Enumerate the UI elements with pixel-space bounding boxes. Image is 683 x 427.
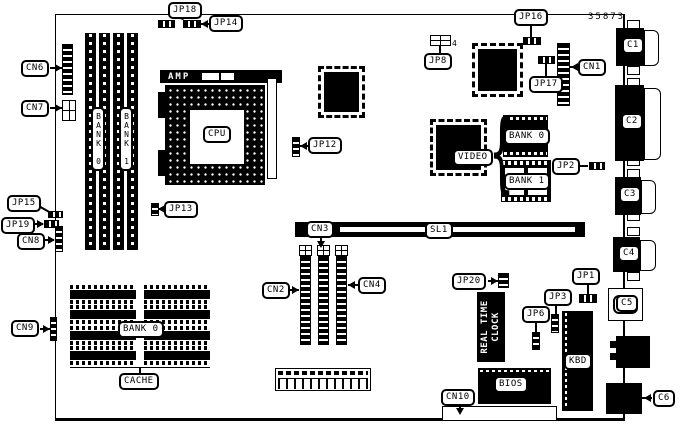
qfp-chip (318, 66, 365, 118)
rtc-chip: REAL TIME CLOCK (477, 292, 505, 362)
jp2-jumper (589, 162, 605, 170)
c6-arrow (644, 394, 651, 402)
c6-port (606, 383, 642, 414)
din-connector (616, 336, 650, 368)
edge-tab (627, 227, 640, 236)
cn4-arrow (348, 281, 355, 289)
jp15-jumper (48, 211, 63, 218)
sl1-slot-groove (340, 227, 575, 232)
jp17-pointer (545, 64, 547, 76)
jp16-label: JP16 (514, 9, 548, 26)
jp8-jumper (430, 35, 451, 46)
chipset-chip (472, 43, 523, 97)
cn1-label: CN1 (578, 59, 606, 76)
socket-tab (158, 92, 165, 118)
rtc-text: REAL TIME CLOCK (477, 292, 505, 362)
cn8-connector (55, 226, 63, 252)
video-chip (430, 119, 487, 176)
video-label: VIDEO (453, 149, 493, 166)
cn9-arrow (43, 325, 50, 333)
cpu-socket-brand-label: AMP (168, 72, 190, 82)
edge-tab (627, 272, 640, 281)
edge-tab (627, 66, 640, 75)
jp14-arrow (201, 20, 208, 28)
rtc-line2: CLOCK (491, 292, 502, 362)
sl1-label: SL1 (425, 222, 453, 239)
c1-dsub-shell (644, 30, 659, 66)
din-connector-tab (610, 341, 617, 348)
jp12-arrow (300, 142, 307, 150)
jp20-arrow (491, 277, 498, 285)
cache-bank0-label: BANK 0 (118, 321, 164, 338)
cache-label: CACHE (119, 373, 159, 390)
jp20-jumper (498, 273, 509, 288)
cn2-label: CN2 (262, 282, 290, 299)
jp8-label: JP8 (424, 53, 452, 70)
jp18-label: JP18 (168, 2, 202, 19)
bios-label: BIOS (494, 376, 528, 393)
cn8-arrow (48, 236, 55, 244)
cn1-arrow (571, 63, 578, 71)
jp15-label: JP15 (7, 195, 41, 212)
video-bank1-label: BANK 1 (504, 173, 550, 190)
cn3-label: CN3 (306, 221, 334, 238)
cn9-connector (50, 317, 57, 341)
cn7-connector (62, 100, 76, 121)
cn10-label: CN10 (441, 389, 475, 406)
jp16-jumper (523, 37, 541, 45)
c6-label: C6 (653, 390, 675, 407)
cn3-slot (318, 256, 329, 345)
simm-bank1-label: BANK 1 (119, 107, 133, 171)
jp8-pin-number: 4 (452, 39, 457, 48)
jp14-jumper (183, 20, 201, 28)
c2-dsub-shell (644, 88, 661, 160)
jp12-jumper (292, 137, 300, 157)
jp13-label: JP13 (164, 201, 198, 218)
kbd-label: KBD (564, 353, 592, 370)
jp2-label: JP2 (552, 158, 580, 175)
cn6-arrow (55, 64, 62, 72)
jp18-jumper (158, 20, 175, 28)
cache-chip (70, 285, 136, 304)
cn7-label: CN7 (21, 100, 49, 117)
cn4-slot-header (335, 245, 348, 256)
c2-label: C2 (621, 113, 643, 130)
cn3-arrow (317, 241, 325, 248)
cn6-label: CN6 (21, 60, 49, 77)
jp1-jumper (579, 294, 597, 303)
jp19-label: JP19 (1, 217, 35, 234)
jp3-label: JP3 (544, 289, 572, 306)
socket-tab (158, 150, 165, 176)
c5-label: C5 (616, 295, 638, 312)
cn2-arrow (292, 286, 299, 294)
part-number: 35873 (588, 12, 625, 22)
c1-label: C1 (622, 37, 644, 54)
c4-label: C4 (618, 245, 640, 262)
jp20-label: JP20 (452, 273, 486, 290)
din-connector-tab (610, 353, 617, 360)
pin-row (278, 371, 368, 375)
cn8-label: CN8 (17, 233, 45, 250)
motherboard-diagram: 35873 BANK 0 BANK 1 AMP CPU VIDEO { BANK… (0, 0, 683, 427)
c3-dsub-shell (641, 180, 656, 214)
jp17-label: JP17 (529, 76, 563, 93)
cache-chip (144, 346, 210, 365)
cpu-label: CPU (203, 126, 231, 143)
jp14-label: JP14 (209, 15, 243, 32)
cn7-arrow (55, 104, 62, 112)
socket-notch (221, 73, 234, 80)
jp1-label: JP1 (572, 268, 600, 285)
cn2-slot-header (299, 245, 312, 256)
cache-chip (144, 285, 210, 304)
jp6-label: JP6 (522, 306, 550, 323)
cn1-connector (557, 43, 570, 106)
jp19-arrow (37, 220, 44, 228)
cn6-connector (62, 44, 73, 95)
cache-chip (70, 346, 136, 365)
pin-row (480, 370, 549, 372)
jp12-label: JP12 (308, 137, 342, 154)
cn2-slot (300, 256, 311, 345)
jp16-pointer (530, 25, 532, 37)
jp6-jumper (532, 332, 540, 350)
cn9-label: CN9 (11, 320, 39, 337)
power-connector (275, 368, 371, 391)
cn4-label: CN4 (358, 277, 386, 294)
video-bank0-label: BANK 0 (504, 128, 550, 145)
c3-label: C3 (619, 186, 641, 203)
jp3-jumper (551, 314, 559, 333)
jp17-jumper (538, 56, 555, 64)
cn10-arrow (456, 408, 464, 415)
rtc-line1: REAL TIME (480, 292, 491, 362)
cn4-slot (336, 256, 347, 345)
zif-lever (267, 78, 277, 179)
c4-dsub-shell (640, 240, 656, 271)
socket-notch (202, 73, 219, 80)
simm-bank0-label: BANK 0 (91, 107, 105, 171)
pin-row (278, 378, 368, 389)
